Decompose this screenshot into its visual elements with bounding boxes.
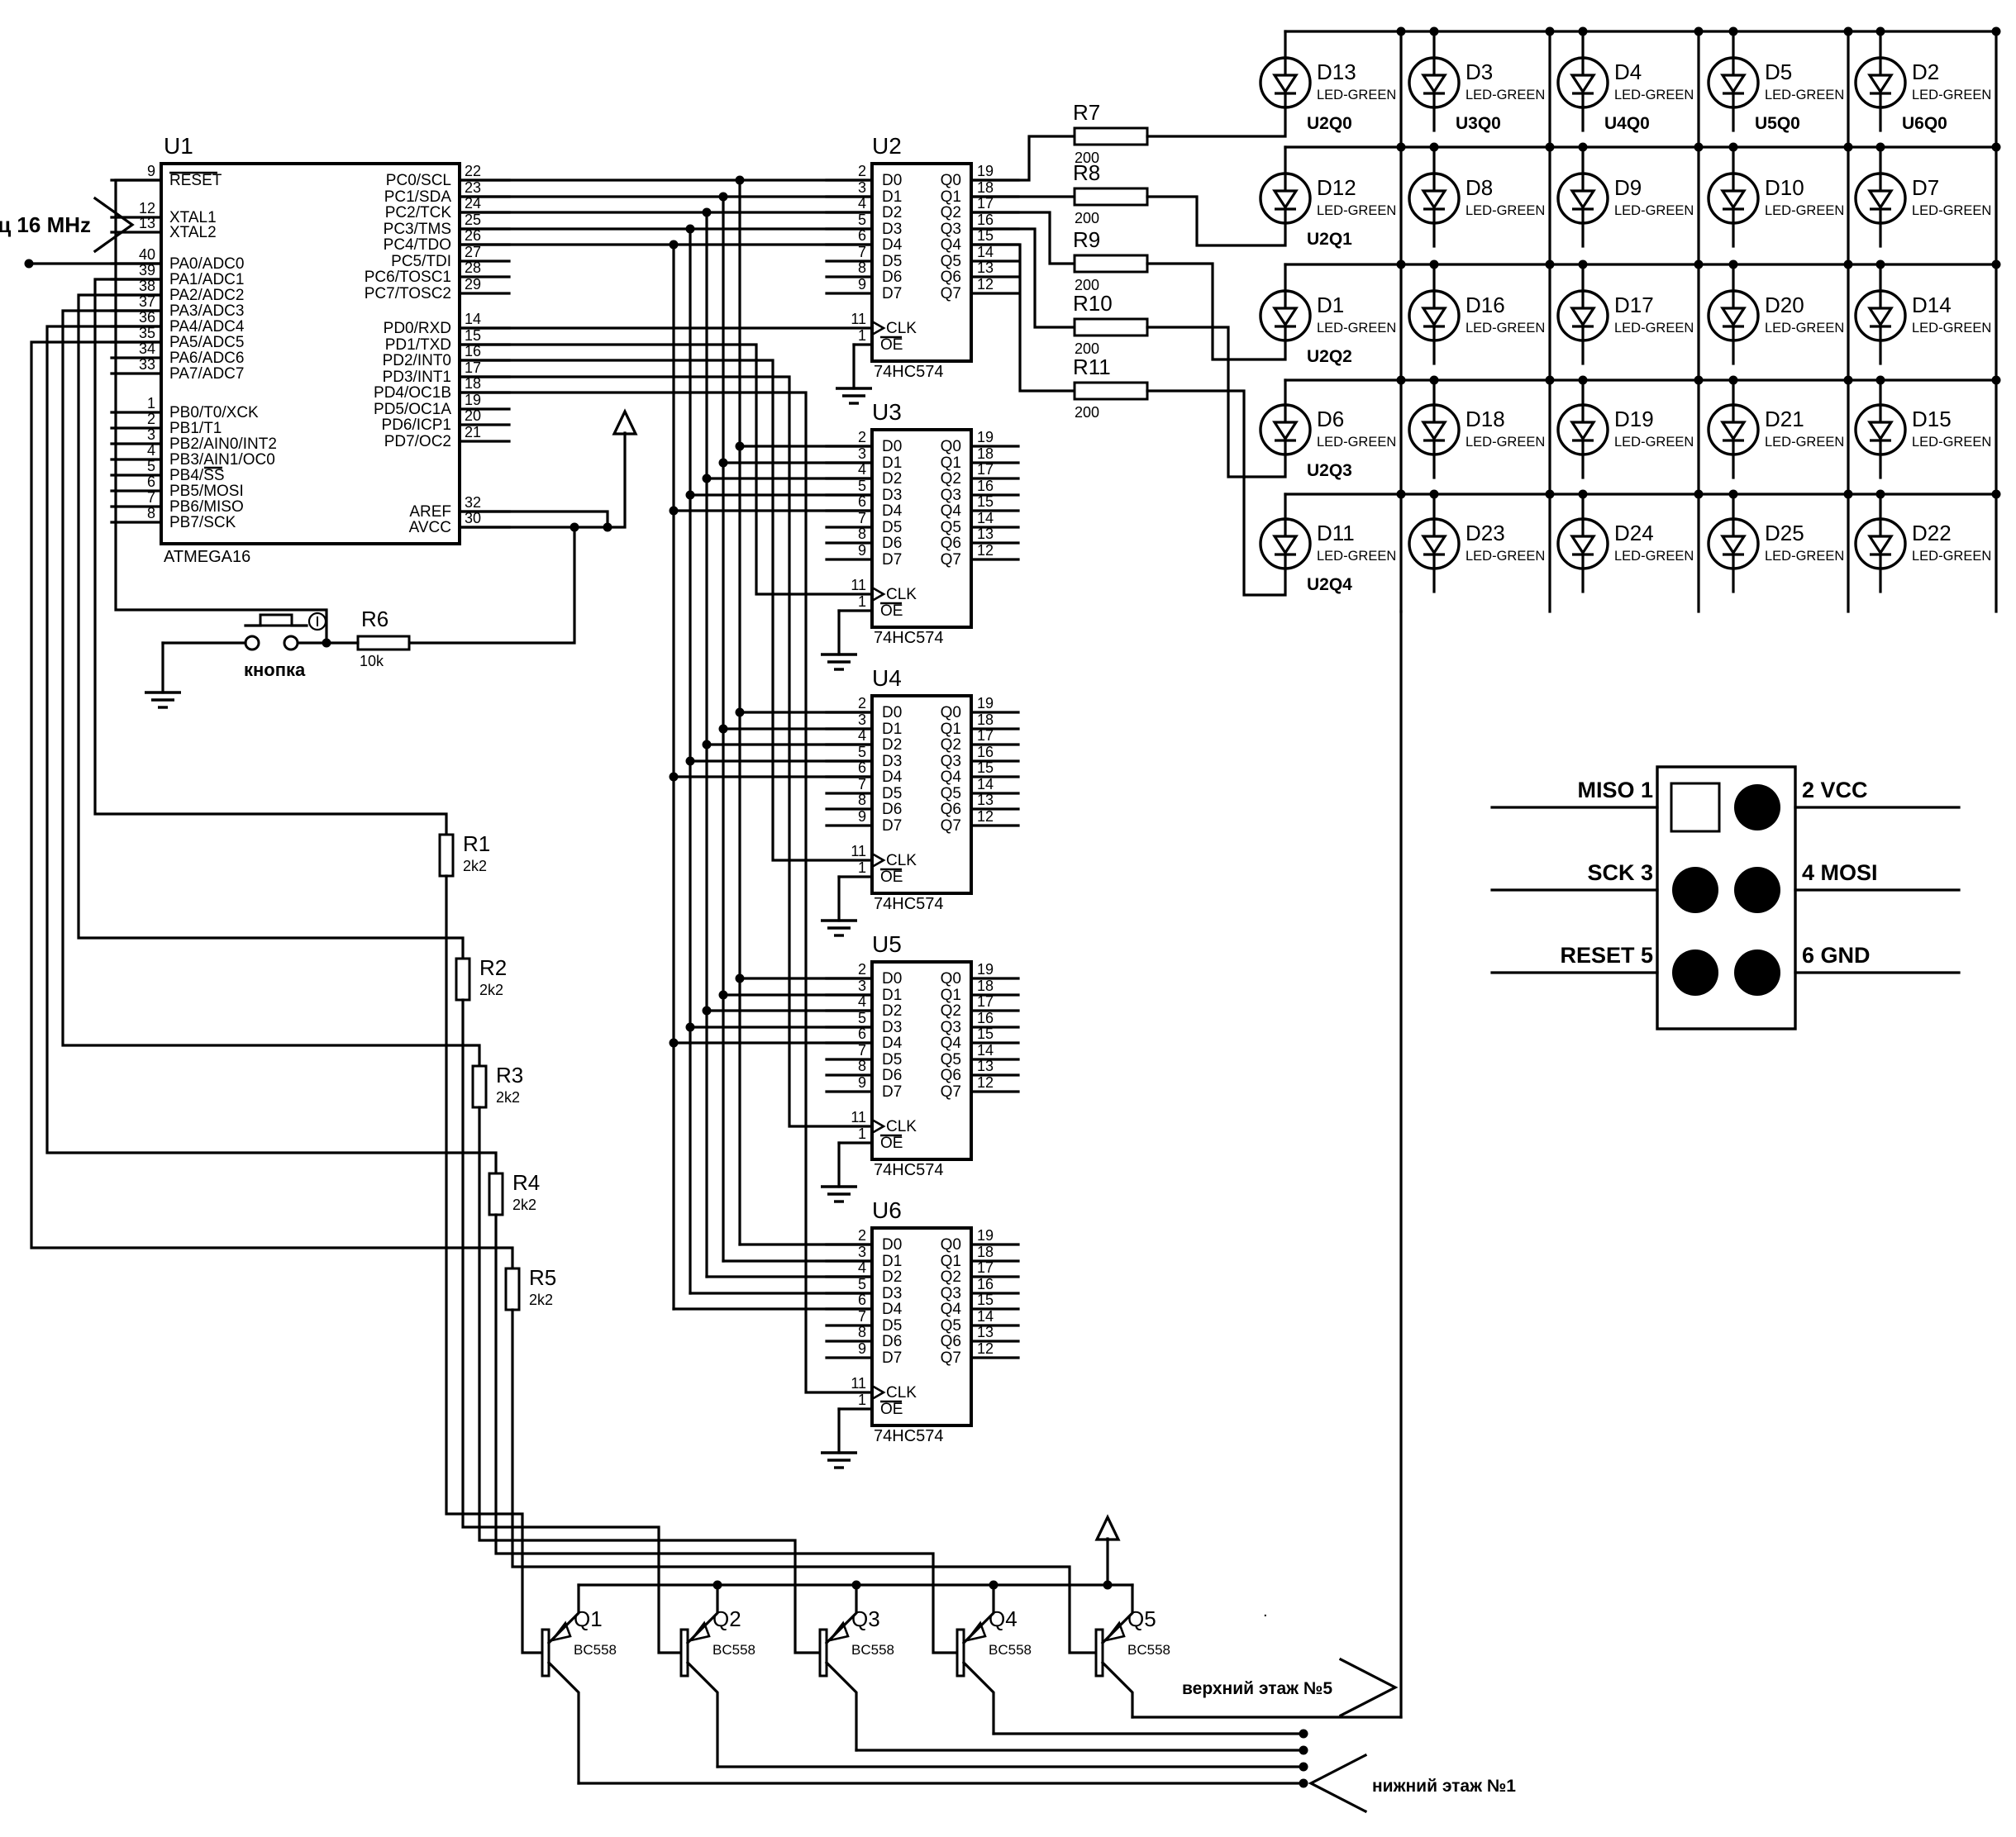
junction-dot — [1992, 143, 2001, 152]
pin-number: 4 — [147, 442, 155, 459]
latch-part: 74HC574 — [874, 895, 944, 913]
junction-dot — [1103, 1581, 1113, 1590]
pin-number: 8 — [858, 526, 866, 542]
junction-dot — [989, 1581, 998, 1590]
pin-label: PC2/TCK — [385, 204, 452, 221]
resistor-value: 2k2 — [529, 1292, 553, 1308]
pin-label: CLK — [886, 1384, 917, 1402]
pin-label: D3 — [882, 221, 902, 238]
pin-label: Q3 — [941, 221, 961, 238]
pin-number: 7 — [858, 1308, 866, 1325]
led-net-label: U2Q2 — [1307, 347, 1352, 366]
junction-dot — [1876, 490, 1885, 499]
junction-dot — [1844, 490, 1853, 499]
pin-number: 11 — [851, 843, 866, 859]
base-net — [512, 1310, 1096, 1653]
pin-label: Q1 — [941, 454, 961, 472]
pin-number: 2 — [858, 1227, 866, 1244]
led-net-label: U5Q0 — [1755, 114, 1800, 133]
pin-label: PC6/TOSC1 — [365, 269, 451, 286]
pin-label: D5 — [882, 1051, 902, 1068]
pin-label: D1 — [882, 987, 902, 1004]
pin-label: PB4/SS — [169, 467, 225, 484]
floor5-arrow — [1341, 1659, 1395, 1716]
pin-label: D6 — [882, 1333, 902, 1350]
transistor-bar — [1096, 1630, 1103, 1676]
pin-number: 13 — [977, 259, 994, 276]
led-type: LED-GREEN — [1466, 321, 1545, 336]
pin-number: 3 — [858, 711, 866, 728]
pin-number: 17 — [977, 993, 994, 1010]
pin-number: 33 — [139, 356, 155, 373]
pin-number: 18 — [977, 711, 994, 728]
led-type: LED-GREEN — [1466, 203, 1545, 218]
pin-label: OE — [880, 1135, 903, 1152]
row-resistor-body — [1075, 255, 1147, 272]
pin-label: D0 — [882, 438, 902, 455]
junction-dot — [1992, 376, 2001, 385]
pin-label: PC7/TOSC2 — [365, 285, 451, 302]
pin-label: D3 — [882, 1019, 902, 1036]
transistor-part: BC558 — [851, 1642, 894, 1658]
pin-number: 8 — [147, 505, 155, 521]
junction-dot — [1579, 376, 1588, 385]
latch-ref: U6 — [872, 1197, 902, 1223]
pin-number: 19 — [977, 1227, 994, 1244]
pin-number: 5 — [858, 1010, 866, 1026]
led-name: D9 — [1614, 175, 1642, 200]
latch-part: 74HC574 — [874, 629, 944, 647]
resistor-value: 200 — [1075, 210, 1099, 226]
row-resistor-body — [1075, 383, 1147, 399]
pin-label: Q4 — [941, 1035, 962, 1052]
junction-dot — [1992, 27, 2001, 36]
pin-number: 14 — [977, 776, 994, 792]
schematic-canvas: U1ATMEGA169RESET12XTAL113XTAL240PA0/ADC0… — [0, 0, 2016, 1837]
pin-label: Q4 — [941, 1301, 962, 1318]
pin-number: 18 — [977, 179, 994, 196]
pin-label: Q5 — [941, 1051, 961, 1068]
pin-label: PA4/ADC4 — [169, 318, 245, 336]
resistor-ref: R11 — [1073, 355, 1111, 379]
led-type: LED-GREEN — [1912, 88, 1991, 102]
pin-label: PB2/AIN0/INT2 — [169, 435, 277, 453]
resistor-ref: R9 — [1073, 227, 1100, 252]
pin-label: PD3/INT1 — [383, 369, 451, 386]
junction-dot — [719, 193, 728, 202]
junction-dot — [1844, 376, 1853, 385]
vcc-arrow-icon — [614, 412, 636, 434]
pin-number: 3 — [858, 978, 866, 994]
resistor-ref: R6 — [361, 607, 388, 631]
pin-number: 11 — [851, 577, 866, 593]
transistor-bar — [542, 1630, 549, 1676]
pin-label: Q7 — [941, 285, 961, 302]
pin-label: AREF — [409, 503, 451, 521]
row-resistor-body — [1075, 128, 1147, 145]
junction-dot — [1397, 143, 1406, 152]
junction-dot — [1546, 260, 1555, 269]
pin-label: D1 — [882, 1253, 902, 1270]
latch-ref: U2 — [872, 133, 902, 159]
pin-label: D6 — [882, 1067, 902, 1084]
led-net-label: U6Q0 — [1902, 114, 1947, 133]
pin-number: 17 — [977, 461, 994, 478]
pin-number: 12 — [139, 200, 155, 217]
pin-label: PD0/RXD — [384, 320, 451, 337]
pin-label: Q5 — [941, 519, 961, 536]
junction-dot — [1430, 376, 1439, 385]
pin-label: Q2 — [941, 1268, 961, 1286]
pin-label: PC4/TDO — [384, 236, 451, 254]
pin-label: D7 — [882, 817, 902, 835]
pin-label: Q3 — [941, 1285, 961, 1302]
pin-label: D2 — [882, 1002, 902, 1020]
pin-label: PA0/ADC0 — [169, 255, 244, 273]
led-type: LED-GREEN — [1614, 549, 1694, 564]
isp-left-label: MISO 1 — [1577, 778, 1653, 802]
led-name: D14 — [1912, 293, 1952, 317]
junction-dot — [1430, 260, 1439, 269]
pin-label: PD2/INT0 — [383, 352, 451, 369]
pin-number: 13 — [139, 215, 155, 231]
led-name: D25 — [1765, 521, 1804, 545]
led-name: D2 — [1912, 59, 1939, 84]
led-name: D4 — [1614, 59, 1642, 84]
row-resistor-body — [1075, 188, 1147, 205]
pin-label: D2 — [882, 1268, 902, 1286]
led-name: D16 — [1466, 293, 1505, 317]
junction-dot — [1579, 490, 1588, 499]
pin-number: 12 — [977, 808, 994, 825]
transistor-part: BC558 — [713, 1642, 755, 1658]
pin-number: 9 — [858, 808, 866, 825]
pin-number: 1 — [858, 593, 866, 610]
base-resistor-body — [473, 1066, 486, 1107]
transistor-ref: Q2 — [713, 1606, 741, 1631]
junction-dot — [1729, 376, 1738, 385]
pin-number: 6 — [147, 474, 155, 490]
pin-label: Q2 — [941, 736, 961, 754]
pin-label: D3 — [882, 1285, 902, 1302]
pin-label: CLK — [886, 586, 917, 603]
led-type: LED-GREEN — [1765, 321, 1844, 336]
pin-number: 7 — [858, 1042, 866, 1059]
pin-number: 3 — [858, 1244, 866, 1260]
led-type: LED-GREEN — [1765, 549, 1844, 564]
pin-label: PC3/TMS — [384, 221, 451, 238]
clk-net — [460, 345, 872, 594]
clk-net — [460, 393, 872, 1392]
pin-label: PA5/ADC5 — [169, 334, 244, 351]
resistor-value: 10k — [360, 653, 384, 669]
transistor-ref: Q4 — [989, 1606, 1018, 1631]
led-type: LED-GREEN — [1466, 88, 1545, 102]
pin-number: 5 — [858, 1276, 866, 1292]
isp-right-label: 4 MOSI — [1802, 860, 1878, 885]
base-resistor-body — [456, 959, 469, 1000]
pin-number: 27 — [465, 244, 481, 260]
pin-label: Q0 — [941, 1236, 961, 1254]
pin-number: 2 — [858, 961, 866, 978]
pin-label: Q5 — [941, 1317, 961, 1335]
junction-dot — [670, 240, 679, 250]
transistor-part: BC558 — [574, 1642, 617, 1658]
junction-dot — [1876, 260, 1885, 269]
resistor-ref: R2 — [479, 955, 507, 980]
led-net-label: U2Q3 — [1307, 461, 1352, 480]
lower-floor-label: нижний этаж №1 — [1372, 1777, 1516, 1796]
pin-number: 16 — [977, 1010, 994, 1026]
transistor-part: BC558 — [1127, 1642, 1170, 1658]
vcc-arrow-icon — [1097, 1517, 1118, 1540]
pin-number: 9 — [858, 276, 866, 293]
pin-label: Q4 — [941, 236, 962, 254]
led-name: D8 — [1466, 175, 1493, 200]
pin-number: 13 — [977, 1058, 994, 1074]
pin-label: OE — [880, 336, 903, 354]
junction-dot — [1992, 260, 2001, 269]
pin-label: RESET — [169, 172, 222, 189]
pin-label: Q5 — [941, 253, 961, 270]
junction-dot — [852, 1581, 861, 1590]
crystal-label: кварц 16 MHz — [0, 212, 91, 237]
pin-label: CLK — [886, 852, 917, 869]
collector-wire — [549, 1663, 579, 1783]
pin-label: Q3 — [941, 1019, 961, 1036]
led-name: D10 — [1765, 175, 1804, 200]
pin-number: 19 — [977, 429, 994, 445]
schematic: U1ATMEGA169RESET12XTAL113XTAL240PA0/ADC0… — [0, 0, 2016, 1837]
led-name: D11 — [1317, 521, 1355, 545]
pin-number: 13 — [977, 1324, 994, 1340]
transistor-bar — [957, 1630, 964, 1676]
isp-pad — [1734, 949, 1780, 996]
junction-dot — [1876, 143, 1885, 152]
pin-label: Q6 — [941, 1333, 961, 1350]
pin-label: D1 — [882, 454, 902, 472]
pin-number: 5 — [858, 478, 866, 494]
pin-label: D0 — [882, 1236, 902, 1254]
pin-label: PD7/OC2 — [384, 433, 451, 450]
row-resistor-body — [1075, 319, 1147, 336]
pin-label: D3 — [882, 487, 902, 504]
pin-number: 21 — [465, 424, 481, 440]
u1-ref: U1 — [164, 133, 193, 159]
led-name: D6 — [1317, 407, 1344, 431]
transistor-part: BC558 — [989, 1642, 1032, 1658]
led-name: D23 — [1466, 521, 1505, 545]
pin-label: D6 — [882, 535, 902, 552]
led-net-label: U4Q0 — [1604, 114, 1650, 133]
stray-dot: . — [1263, 1602, 1268, 1620]
pin-number: 18 — [977, 445, 994, 462]
pin-label: D7 — [882, 1083, 902, 1101]
latch-part: 74HC574 — [874, 1161, 944, 1179]
avcc-net — [460, 433, 625, 527]
pin-label: OE — [880, 869, 903, 886]
pin-label: D3 — [882, 753, 902, 770]
junction-dot — [1397, 376, 1406, 385]
pin-number: 18 — [977, 978, 994, 994]
pin-label: PD5/OC1A — [374, 401, 451, 418]
led-name: D24 — [1614, 521, 1654, 545]
pin-number: 25 — [465, 212, 481, 228]
junction-dot — [322, 639, 331, 648]
pin-number: 8 — [858, 259, 866, 276]
pin-number: 12 — [977, 276, 994, 293]
latch-ref: U5 — [872, 931, 902, 957]
transistor-ref: Q1 — [574, 1606, 603, 1631]
pin-number: 12 — [977, 1340, 994, 1357]
pin-label: CLK — [886, 1118, 917, 1135]
led-name: D21 — [1765, 407, 1804, 431]
pin-number: 5 — [858, 212, 866, 228]
pin-number: 14 — [977, 1308, 994, 1325]
junction-dot — [1844, 260, 1853, 269]
led-type: LED-GREEN — [1912, 549, 1991, 564]
push-button-pad — [245, 636, 259, 650]
pin-label: Q7 — [941, 1349, 961, 1367]
collector-wire — [827, 1663, 856, 1750]
led-type: LED-GREEN — [1614, 435, 1694, 450]
pin-label: Q6 — [941, 535, 961, 552]
pin-label: D5 — [882, 785, 902, 802]
junction-dot — [1546, 27, 1555, 36]
pin-label: Q4 — [941, 502, 962, 520]
transistor-bar — [820, 1630, 827, 1676]
pin-label: D1 — [882, 721, 902, 738]
pin-number: 12 — [977, 1074, 994, 1091]
pin-label: D4 — [882, 502, 903, 520]
pin-label: D4 — [882, 1035, 903, 1052]
push-button-plate — [260, 615, 292, 626]
junction-dot — [1729, 260, 1738, 269]
pin-label: Q1 — [941, 987, 961, 1004]
pin-label: Q6 — [941, 801, 961, 818]
row-resistor-out — [1147, 327, 1285, 477]
pin-label: Q5 — [941, 785, 961, 802]
junction-dot — [1844, 143, 1853, 152]
led-type: LED-GREEN — [1317, 321, 1396, 336]
led-type: LED-GREEN — [1614, 88, 1694, 102]
led-net-label: U2Q1 — [1307, 230, 1352, 249]
pin-number: 1 — [858, 1126, 866, 1142]
pin-number: 7 — [858, 510, 866, 526]
collector-wire — [688, 1663, 717, 1767]
isp-pad — [1734, 784, 1780, 830]
pin-label: Q0 — [941, 970, 961, 988]
led-type: LED-GREEN — [1466, 435, 1545, 450]
junction-dot — [1579, 260, 1588, 269]
isp-left-label: RESET 5 — [1560, 943, 1653, 968]
pin-number: 1 — [147, 395, 155, 412]
pin-number: 7 — [858, 244, 866, 260]
pin-label: PB7/SCK — [169, 514, 236, 531]
resistor-ref: R7 — [1073, 100, 1100, 125]
pin-label: D6 — [882, 269, 902, 286]
pin-number: 23 — [465, 179, 481, 196]
junction-dot — [1729, 490, 1738, 499]
clk-net — [460, 377, 872, 1126]
pin-number: 15 — [465, 327, 481, 344]
pin-label: D1 — [882, 188, 902, 206]
pin-label: Q2 — [941, 470, 961, 488]
pin-label: PD4/OC1B — [374, 384, 451, 402]
pin-number: 3 — [858, 445, 866, 462]
u1-part: ATMEGA16 — [164, 548, 250, 566]
pin-label: PC1/SDA — [384, 188, 452, 206]
pin-label: D0 — [882, 970, 902, 988]
resistor-value: 2k2 — [479, 982, 503, 998]
pin-number: 19 — [977, 961, 994, 978]
pin-label: Q6 — [941, 269, 961, 286]
collector-wire — [964, 1663, 994, 1734]
pin-label: D6 — [882, 801, 902, 818]
led-name: D1 — [1317, 293, 1344, 317]
junction-dot — [736, 176, 745, 185]
pin-number: 20 — [465, 407, 481, 424]
led-type: LED-GREEN — [1765, 88, 1844, 102]
junction-dot — [1694, 376, 1704, 385]
junction-dot — [1430, 143, 1439, 152]
pin-label: PD6/ICP1 — [382, 416, 451, 434]
led-type: LED-GREEN — [1614, 321, 1694, 336]
isp-pad — [1734, 867, 1780, 913]
led-net-label: U3Q0 — [1456, 114, 1501, 133]
pin-label: Q7 — [941, 551, 961, 569]
pin-label: Q0 — [941, 438, 961, 455]
pin-label: D2 — [882, 736, 902, 754]
pin-number: 29 — [465, 276, 481, 293]
latch-part: 74HC574 — [874, 1427, 944, 1445]
pin-number: 17 — [977, 1259, 994, 1276]
resistor-ref: R1 — [463, 831, 490, 856]
isp-pad — [1672, 867, 1718, 913]
aref-net — [460, 512, 608, 527]
resistor-ref: R10 — [1073, 291, 1113, 316]
pin-label: D4 — [882, 769, 903, 786]
led-type: LED-GREEN — [1317, 435, 1396, 450]
led-name: D15 — [1912, 407, 1952, 431]
pin-number: 1 — [858, 1392, 866, 1408]
pin-number: 2 — [147, 411, 155, 427]
pin-number: 32 — [465, 494, 481, 511]
pin-number: 15 — [977, 493, 994, 510]
led-type: LED-GREEN — [1466, 549, 1545, 564]
floor1-arrow — [1311, 1755, 1365, 1811]
pin-label: AVCC — [409, 519, 451, 536]
base-resistor-body — [506, 1268, 519, 1310]
junction-dot — [603, 523, 612, 532]
pin-number: 7 — [147, 489, 155, 506]
junction-dot — [1579, 27, 1588, 36]
pin-number: 9 — [858, 542, 866, 559]
pin-label: OE — [880, 602, 903, 620]
pin-number: 22 — [465, 163, 481, 179]
led-name: D13 — [1317, 59, 1356, 84]
pin-number: 14 — [465, 311, 481, 327]
pin-label: Q0 — [941, 172, 961, 189]
pin-label: Q6 — [941, 1067, 961, 1084]
collector-wire — [1103, 1663, 1132, 1717]
pin-label: PB3/AIN1/OC0 — [169, 451, 275, 469]
pin-number: 19 — [977, 695, 994, 711]
pin-label: D0 — [882, 172, 902, 189]
junction-dot — [1694, 143, 1704, 152]
pin-number: 18 — [977, 1244, 994, 1260]
junction-dot — [1579, 143, 1588, 152]
